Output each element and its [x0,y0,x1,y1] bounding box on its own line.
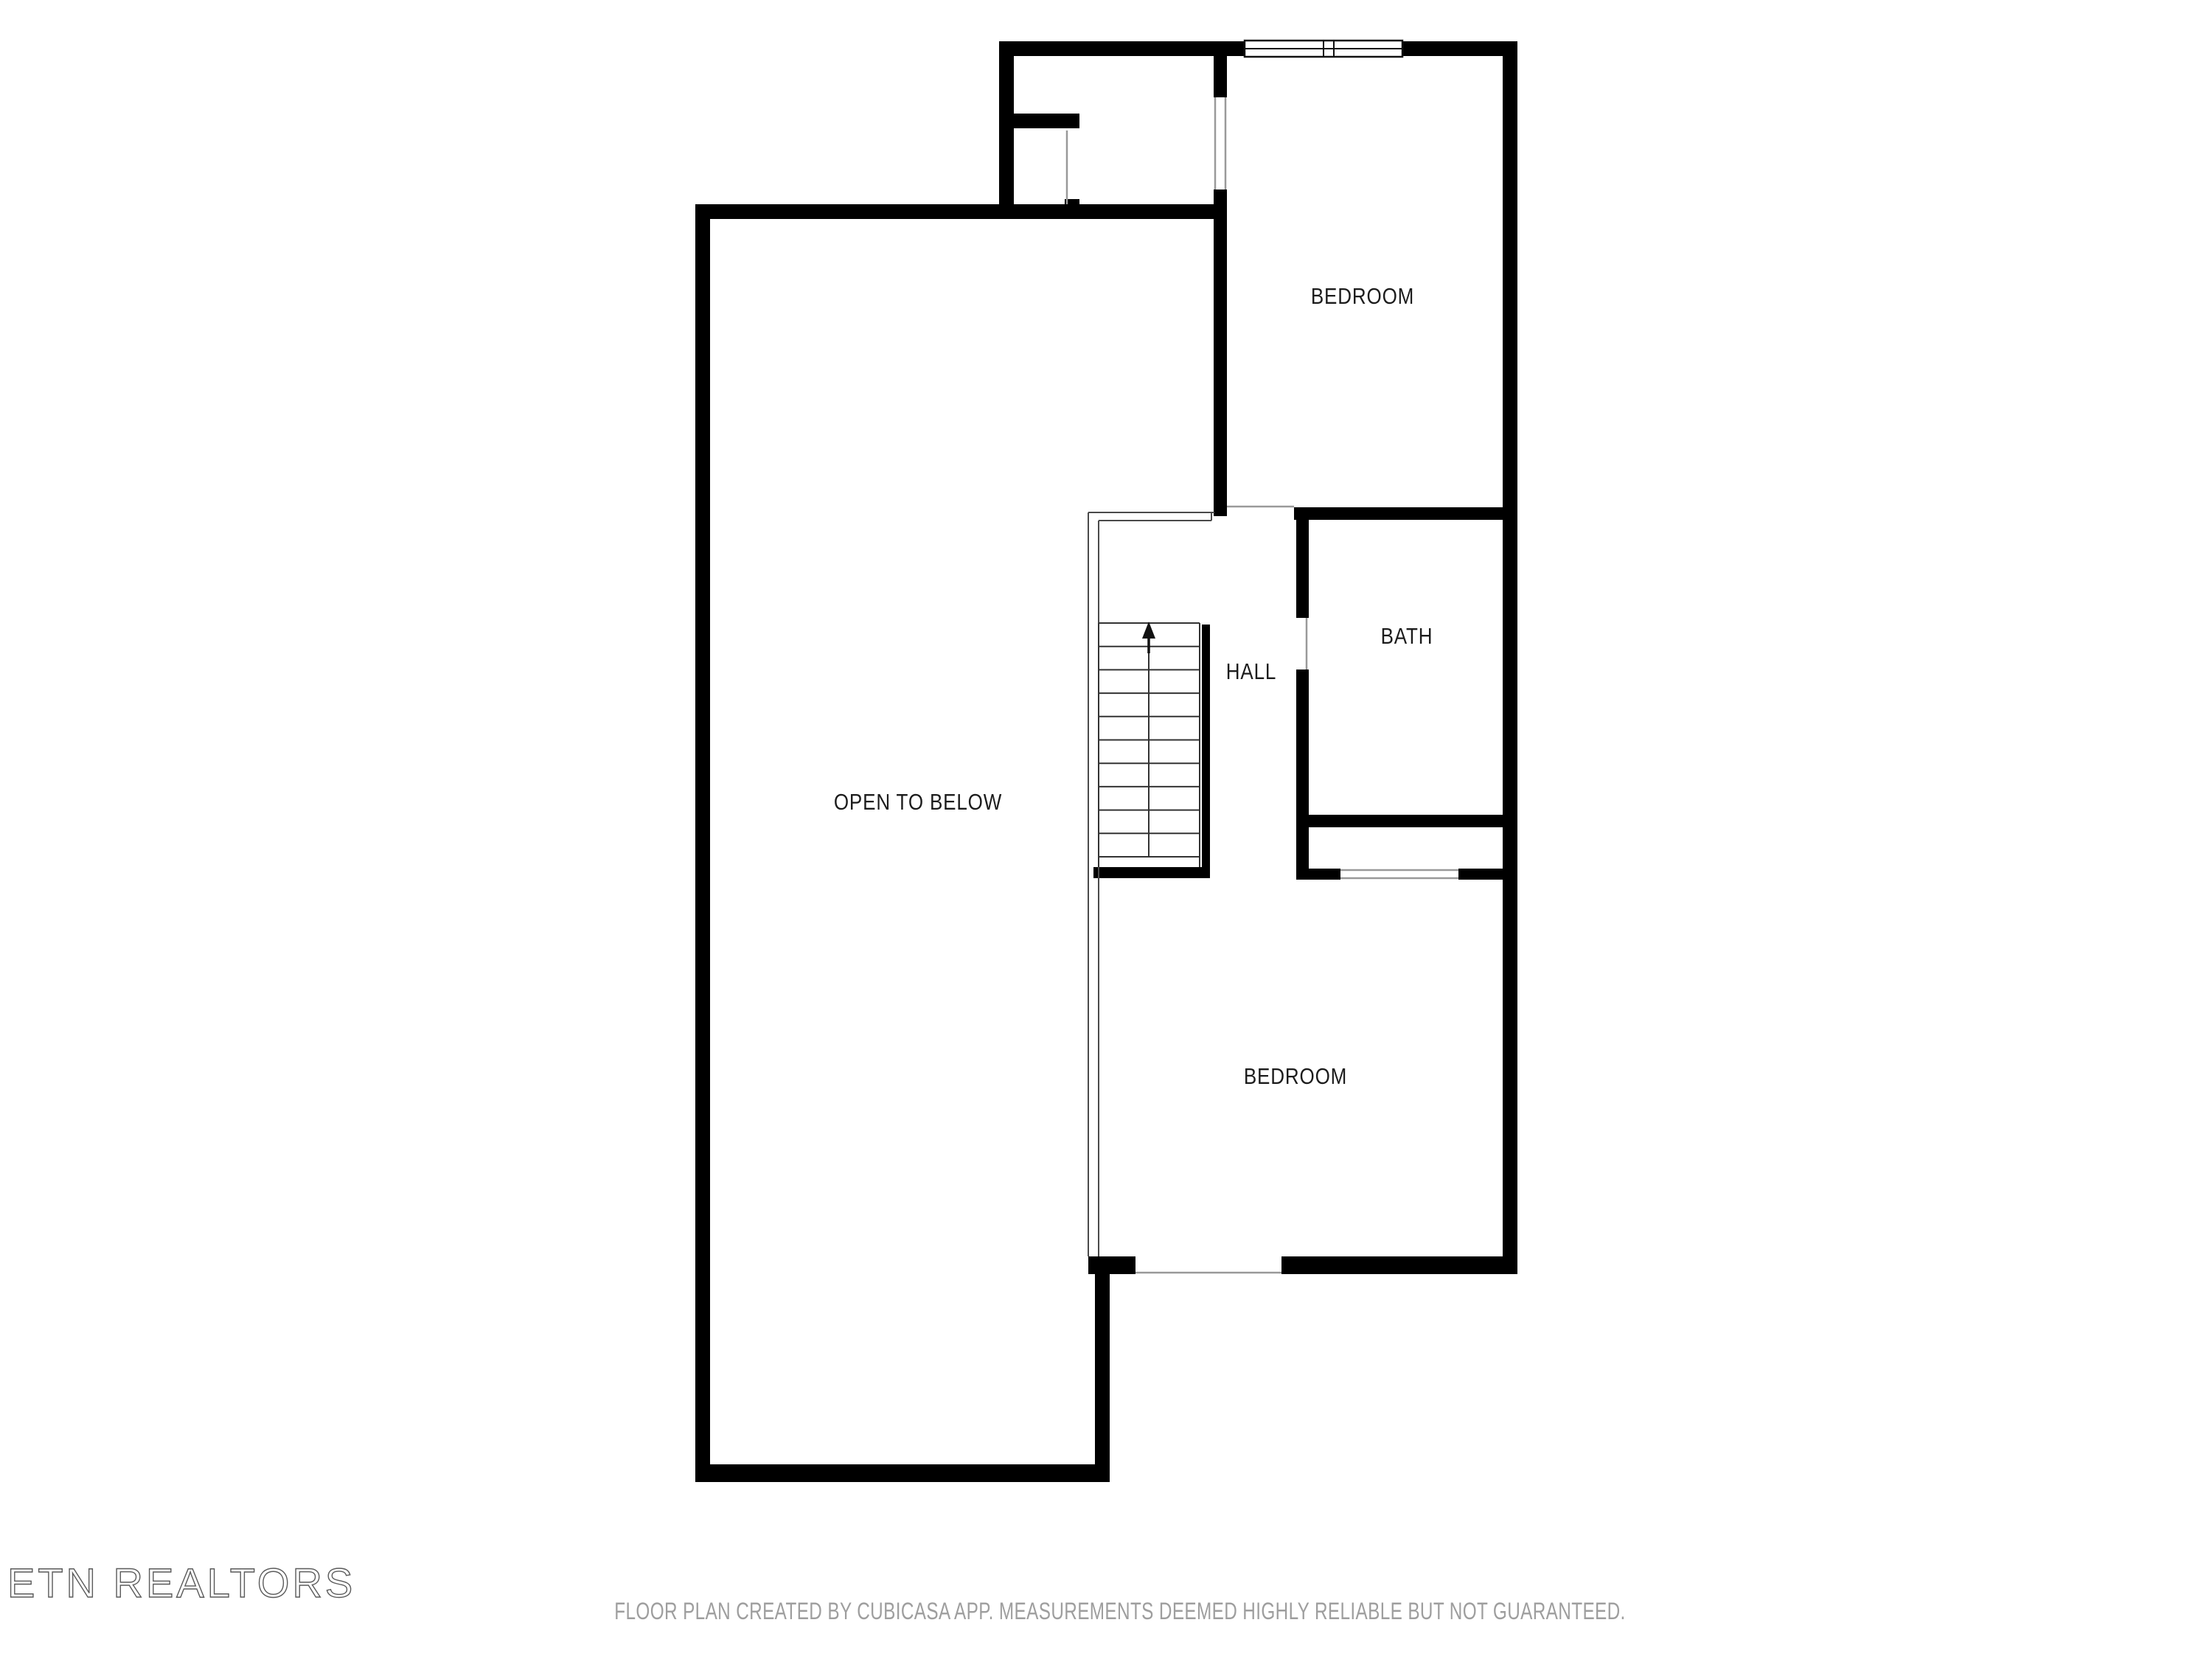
watermark-logo: ETN REALTORS [7,1559,355,1606]
wall-right-outer [1503,41,1517,1274]
floor-plan-page: BEDROOM BATH HALL OPEN TO BELOW BEDROOM … [0,0,2212,1659]
wall-top-left-segment [999,41,1245,56]
wall-bigroom-top [695,204,1227,219]
floor-plan-svg: BEDROOM BATH HALL OPEN TO BELOW BEDROOM … [0,0,2212,1659]
arrow-head [1142,622,1155,639]
wall-closet-front-right [1458,869,1503,880]
room-label-hall: HALL [1226,659,1276,685]
wall-bath-left-lower [1296,669,1309,880]
wall-central-upper [1214,56,1227,97]
room-label-bedroom-top: BEDROOM [1311,284,1414,310]
wall-bigroom-right-lower [1095,1256,1110,1482]
stairs [1099,622,1200,867]
stairs-right-edge [1202,625,1210,867]
wall-bottombedroom-left [1088,1256,1135,1274]
wall-bath-bottom [1309,815,1503,827]
room-label-open-to-below: OPEN TO BELOW [834,790,1002,815]
wall-bedroom-bottom [1294,507,1517,520]
wall-closet-front-left [1296,869,1340,880]
stairs-up-arrow-icon [1142,622,1155,653]
wall-bottombedroom-right [1281,1256,1517,1274]
wall-notch-left [999,41,1014,219]
door-openings [1067,97,1458,1273]
wall-central-main [1214,189,1227,516]
wall-bottom-outer [695,1464,1110,1482]
walls [695,41,1517,1482]
wall-left-outer [695,204,710,1482]
room-label-bath: BATH [1381,624,1433,650]
footer-disclaimer: FLOOR PLAN CREATED BY CUBICASA APP. MEAS… [614,1599,1625,1625]
window-top-bedroom [1245,41,1402,57]
wall-top-right-segment [1402,41,1517,56]
railing [1088,512,1214,1256]
room-label-bedroom-bottom: BEDROOM [1244,1064,1347,1090]
wall-closet-top [1014,114,1079,128]
stairs-bottom-edge [1093,867,1210,878]
room-labels: BEDROOM BATH HALL OPEN TO BELOW BEDROOM [834,284,1433,1090]
wall-bath-left-upper [1296,520,1309,618]
